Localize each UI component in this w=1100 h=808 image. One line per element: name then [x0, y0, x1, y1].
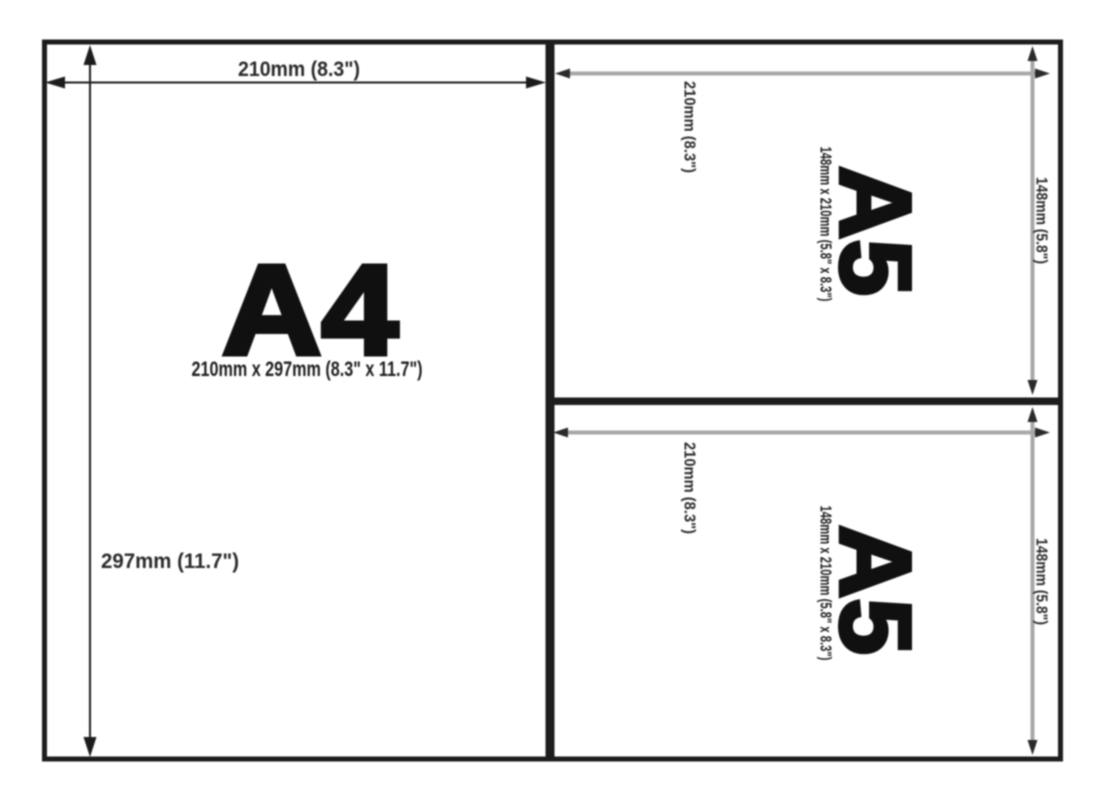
svg-text:148mm x 210mm (5.8" x 8.3"): 148mm x 210mm (5.8" x 8.3") — [817, 147, 834, 302]
svg-text:210mm (8.3"): 210mm (8.3") — [238, 58, 360, 81]
svg-text:210mm (8.3"): 210mm (8.3") — [681, 442, 698, 534]
svg-text:148mm x 210mm (5.8" x 8.3"): 148mm x 210mm (5.8" x 8.3") — [817, 506, 834, 661]
svg-text:210mm (8.3"): 210mm (8.3") — [681, 81, 698, 173]
svg-text:A5: A5 — [819, 166, 931, 296]
svg-text:148mm (5.8"): 148mm (5.8") — [1033, 538, 1050, 625]
svg-text:148mm (5.8"): 148mm (5.8") — [1033, 177, 1050, 264]
svg-text:210mm x 297mm (8.3" x 11.7"): 210mm x 297mm (8.3" x 11.7") — [192, 357, 423, 381]
svg-text:A5: A5 — [819, 525, 931, 655]
svg-text:297mm (11.7"): 297mm (11.7") — [101, 550, 239, 573]
